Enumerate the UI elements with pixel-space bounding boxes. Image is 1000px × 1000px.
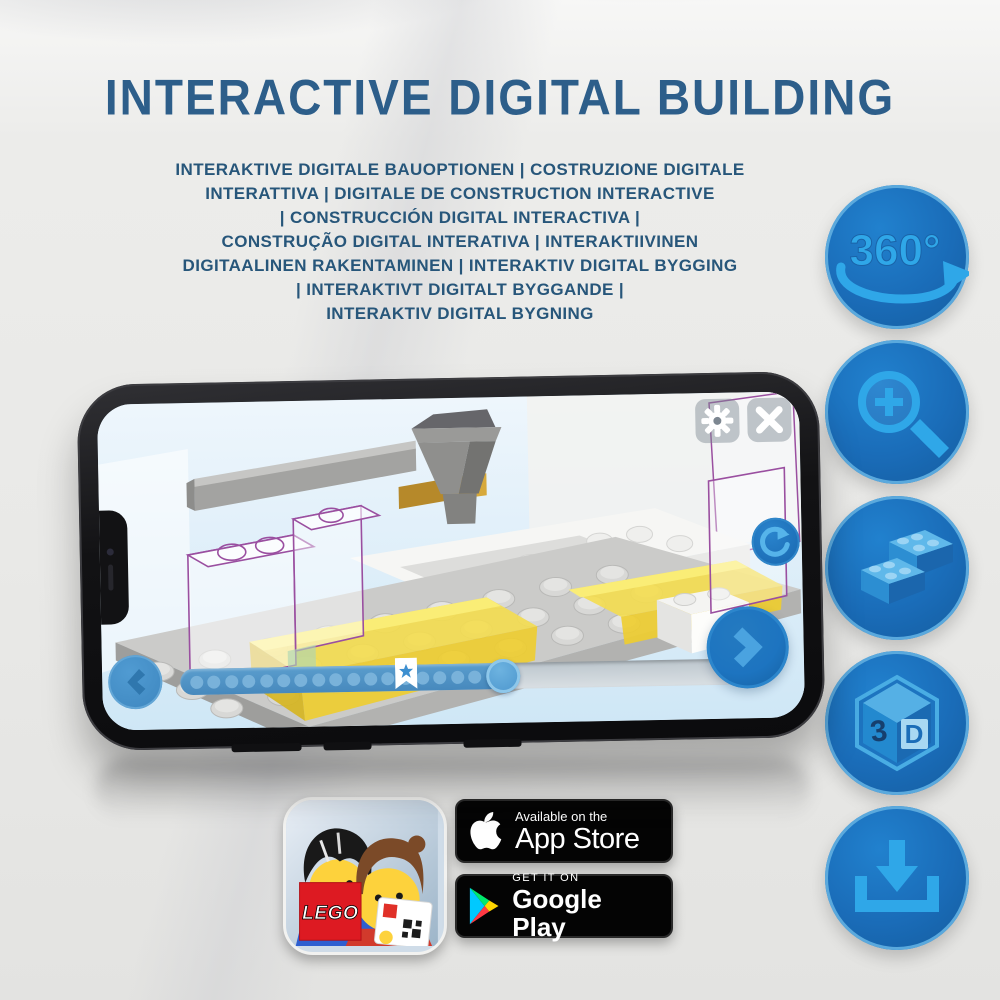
phone-mockup xyxy=(77,371,826,751)
zoom-in-magnifier-icon xyxy=(825,340,969,484)
lego-logo-text: LEGO xyxy=(302,903,358,924)
x-icon xyxy=(747,397,792,442)
rotate-clockwise-icon xyxy=(751,517,800,566)
previous-step-button[interactable] xyxy=(108,655,163,710)
subtitle-line: INTERAKTIVE DIGITALE BAUOPTIONEN | COSTR… xyxy=(80,158,840,182)
google-play-badge[interactable]: GET IT ON Google Play xyxy=(455,874,673,938)
subtitle-line: | CONSTRUCCIÓN DIGITAL INTERACTIVA | xyxy=(80,206,840,230)
chevron-left-icon xyxy=(108,655,163,710)
step-dot xyxy=(364,672,377,685)
google-play-logo-icon xyxy=(469,886,500,926)
close-button[interactable] xyxy=(747,397,792,442)
phone-side-button xyxy=(231,743,301,752)
poster-canvas: INTERACTIVE DIGITAL BUILDING INTERAKTIVE… xyxy=(0,0,1000,1000)
google-play-name: Google Play xyxy=(512,885,659,941)
subtitle-line: INTERATTIVA | DIGITALE DE CONSTRUCTION I… xyxy=(80,182,840,206)
phone-reflection xyxy=(95,758,810,822)
step-dot xyxy=(347,672,360,685)
360-arrow-graphic: 360° xyxy=(825,185,969,329)
step-dot xyxy=(277,674,290,687)
subtitle-line: | INTERAKTIVT DIGITALT BYGGANDE | xyxy=(80,278,840,302)
subtitle-line: DIGITAALINEN RAKENTAMINEN | INTERAKTIV D… xyxy=(80,254,840,278)
step-dot xyxy=(260,674,273,687)
bookmark-star-icon xyxy=(395,658,418,690)
google-play-tagline: GET IT ON xyxy=(512,871,659,885)
phone-screen xyxy=(97,391,805,730)
step-dot xyxy=(208,675,221,688)
subtitle-translations: INTERAKTIVE DIGITALE BAUOPTIONEN | COSTR… xyxy=(80,158,840,326)
3d-cube-icon: 3 D xyxy=(825,651,969,795)
next-step-button[interactable] xyxy=(706,606,790,690)
page-title: INTERACTIVE DIGITAL BUILDING xyxy=(0,68,1000,126)
subtitle-line: INTERAKTIV DIGITAL BYGNING xyxy=(80,302,840,326)
step-dot xyxy=(190,675,203,688)
phone-side-button xyxy=(323,742,371,751)
lego-bricks-icon xyxy=(825,496,969,640)
step-dot xyxy=(329,673,342,686)
lego-logo: LEGO xyxy=(300,883,361,941)
step-dot xyxy=(225,675,238,688)
step-dot xyxy=(381,672,394,685)
cube-face-d: D xyxy=(905,719,924,749)
settings-button[interactable] xyxy=(695,398,740,443)
progress-bookmark[interactable] xyxy=(395,658,418,690)
camera-notch xyxy=(97,510,129,625)
download-icon xyxy=(825,806,969,950)
speaker-slot xyxy=(108,564,113,590)
rotate-view-button[interactable] xyxy=(751,517,800,566)
step-dot xyxy=(312,673,325,686)
chevron-right-icon xyxy=(706,606,790,690)
step-dot xyxy=(451,670,464,683)
360-rotation-icon: 360° xyxy=(825,185,969,329)
step-dot xyxy=(294,673,307,686)
360-label: 360° xyxy=(849,226,940,275)
step-dot xyxy=(468,670,481,683)
step-dot xyxy=(416,671,429,684)
app-store-name: App Store xyxy=(515,824,639,854)
progress-thumb[interactable] xyxy=(486,659,521,694)
subtitle-line: CONSTRUÇÃO DIGITAL INTERATIVA | INTERAKT… xyxy=(80,230,840,254)
step-dot xyxy=(434,671,447,684)
phone-side-button xyxy=(463,739,521,748)
step-dot xyxy=(242,674,255,687)
front-camera xyxy=(107,548,114,555)
gear-icon xyxy=(695,398,740,443)
